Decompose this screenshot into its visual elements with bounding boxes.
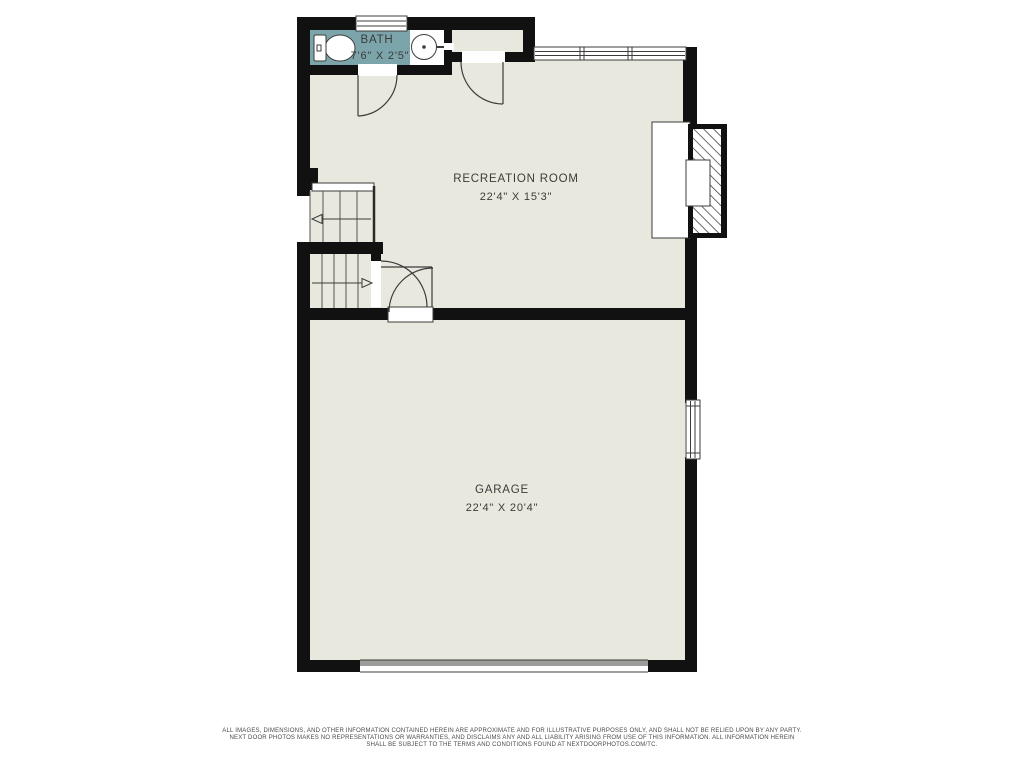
wall-right-c — [685, 457, 697, 672]
wall-stair-separator — [297, 242, 383, 254]
floor-plan: BATH 7'6" X 2'5" RECREATION ROOM 22'4" X… — [0, 0, 1024, 768]
disclaimer-line-3: SHALL BE SUBJECT TO THE TERMS AND CONDIT… — [0, 742, 1024, 749]
bath-label: BATH — [360, 34, 393, 46]
stair-door-opening — [371, 261, 381, 307]
garage-dimensions: 22'4" X 20'4" — [466, 502, 539, 514]
fireplace-icon — [652, 122, 727, 238]
bath-dimensions: 7'6" X 2'5" — [351, 50, 410, 62]
disclaimer-line-1: ALL IMAGES, DIMENSIONS, AND OTHER INFORM… — [0, 728, 1024, 735]
garage-label: GARAGE — [475, 484, 529, 496]
fireplace-firebox — [686, 160, 710, 206]
closet-floor — [452, 28, 523, 54]
recreation-room-label: RECREATION ROOM — [453, 173, 579, 185]
recreation-window-band-icon — [534, 47, 686, 60]
bath-window-icon — [356, 16, 407, 31]
garage-entry-opening — [388, 307, 433, 322]
wall-stair-right — [371, 242, 381, 262]
disclaimer-text: ALL IMAGES, DIMENSIONS, AND OTHER INFORM… — [0, 728, 1024, 749]
room-fills — [305, 28, 685, 660]
stair-landing — [312, 183, 374, 191]
wall-top — [297, 17, 533, 30]
fireplace-hearth — [652, 122, 690, 238]
bath-door-opening — [358, 64, 397, 76]
wall-rec-garage-divider — [297, 308, 697, 320]
toilet-icon — [314, 35, 355, 61]
closet-door-opening — [462, 51, 505, 63]
floor-plan-page: BATH 7'6" X 2'5" RECREATION ROOM 22'4" X… — [0, 0, 1024, 768]
garage-door-icon — [360, 660, 648, 672]
disclaimer-line-2: NEXT DOOR PHOTOS MAKES NO REPRESENTATION… — [0, 735, 1024, 742]
recreation-room-dimensions: 22'4" X 15'3" — [480, 191, 553, 203]
stair-wall-gap — [295, 196, 310, 242]
wall-left-lower — [297, 242, 310, 672]
garage-window-icon — [686, 400, 700, 459]
